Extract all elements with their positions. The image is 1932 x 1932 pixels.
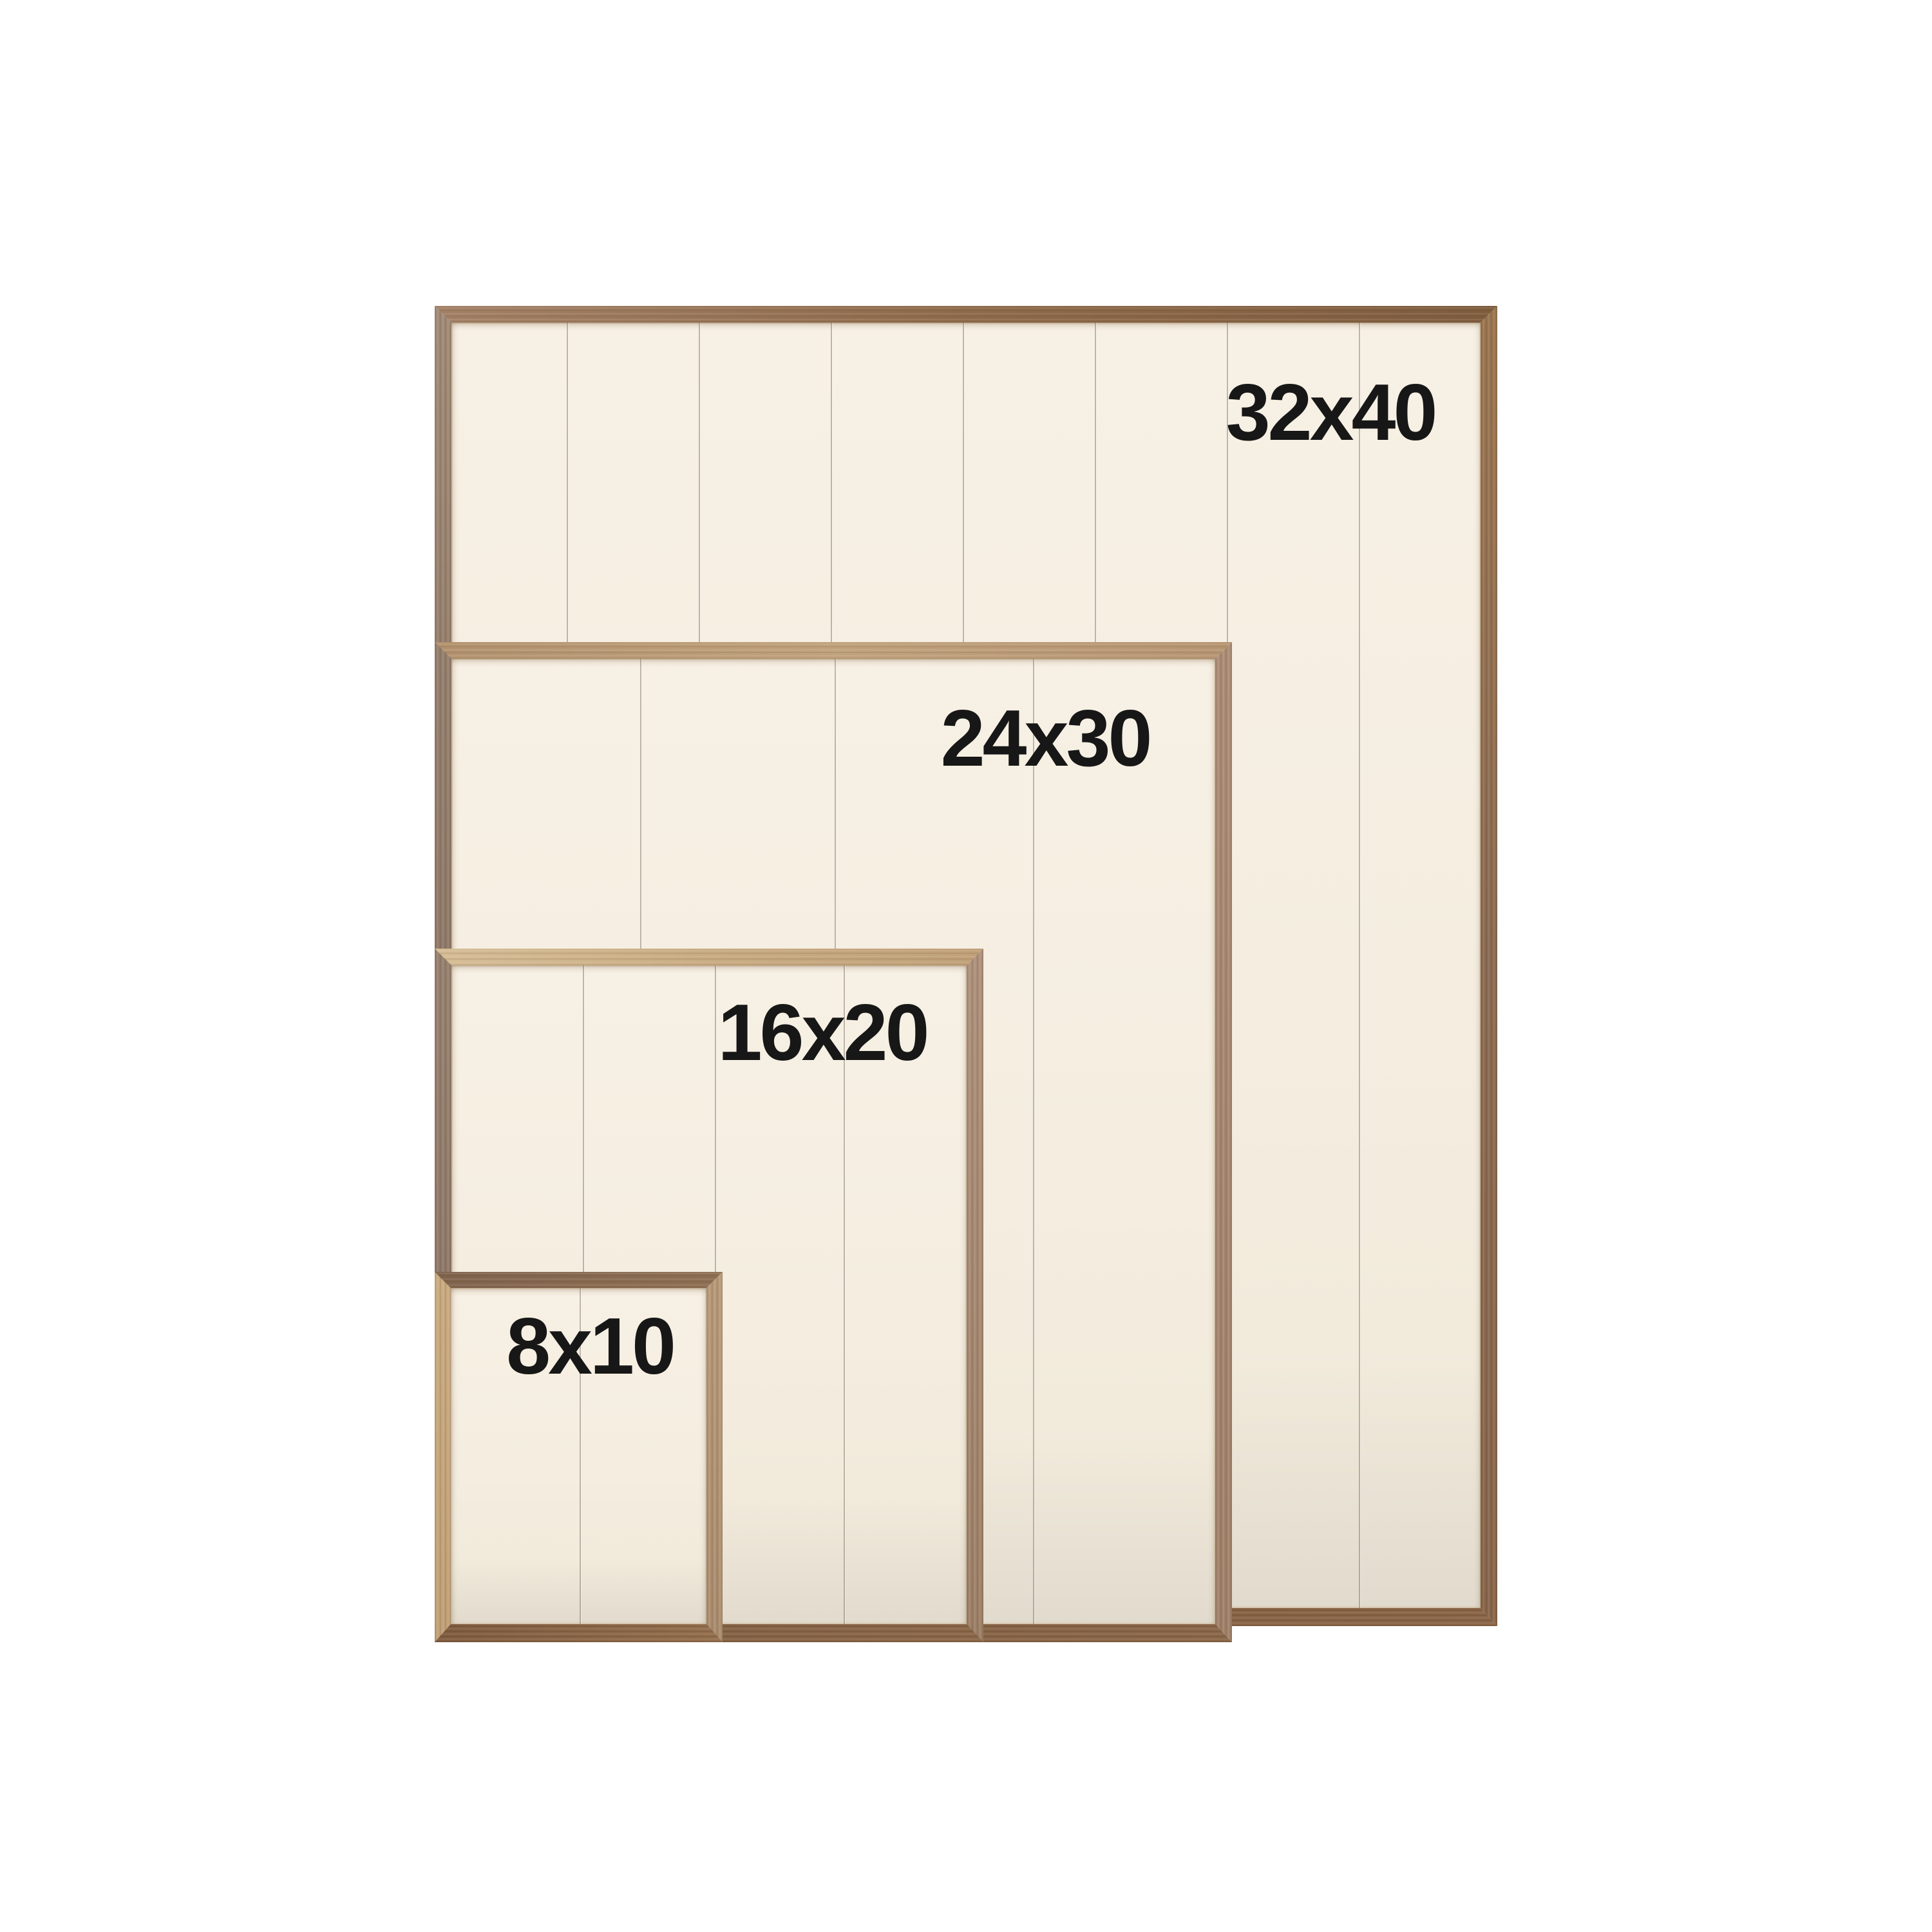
frame-8x10-edge-top xyxy=(435,1272,723,1288)
frame-8x10-edge-left xyxy=(435,1272,451,1642)
frame-16x20-edge-top xyxy=(435,949,983,965)
frame-8x10-edge-bottom xyxy=(435,1624,723,1642)
frame-24x30-edge-top xyxy=(435,642,1232,659)
frame-8x10-edge-right xyxy=(706,1272,723,1642)
size-label-16x20: 16x20 xyxy=(718,998,927,1070)
size-label-32x40: 32x40 xyxy=(1226,377,1435,450)
frame-16x20-edge-right xyxy=(967,949,983,1642)
size-label-8x10: 8x10 xyxy=(506,1311,674,1383)
plank-seam xyxy=(1033,659,1034,1624)
plank-seam xyxy=(1359,323,1360,1608)
frame-8x10: 8x10 xyxy=(435,1272,723,1642)
frame-24x30-edge-right xyxy=(1215,642,1232,1642)
frame-size-chart: 32x4024x3016x208x10 xyxy=(0,0,1932,1932)
size-label-24x30: 24x30 xyxy=(941,703,1150,775)
frame-32x40-edge-right xyxy=(1481,306,1497,1626)
frame-32x40-edge-top xyxy=(435,306,1497,323)
